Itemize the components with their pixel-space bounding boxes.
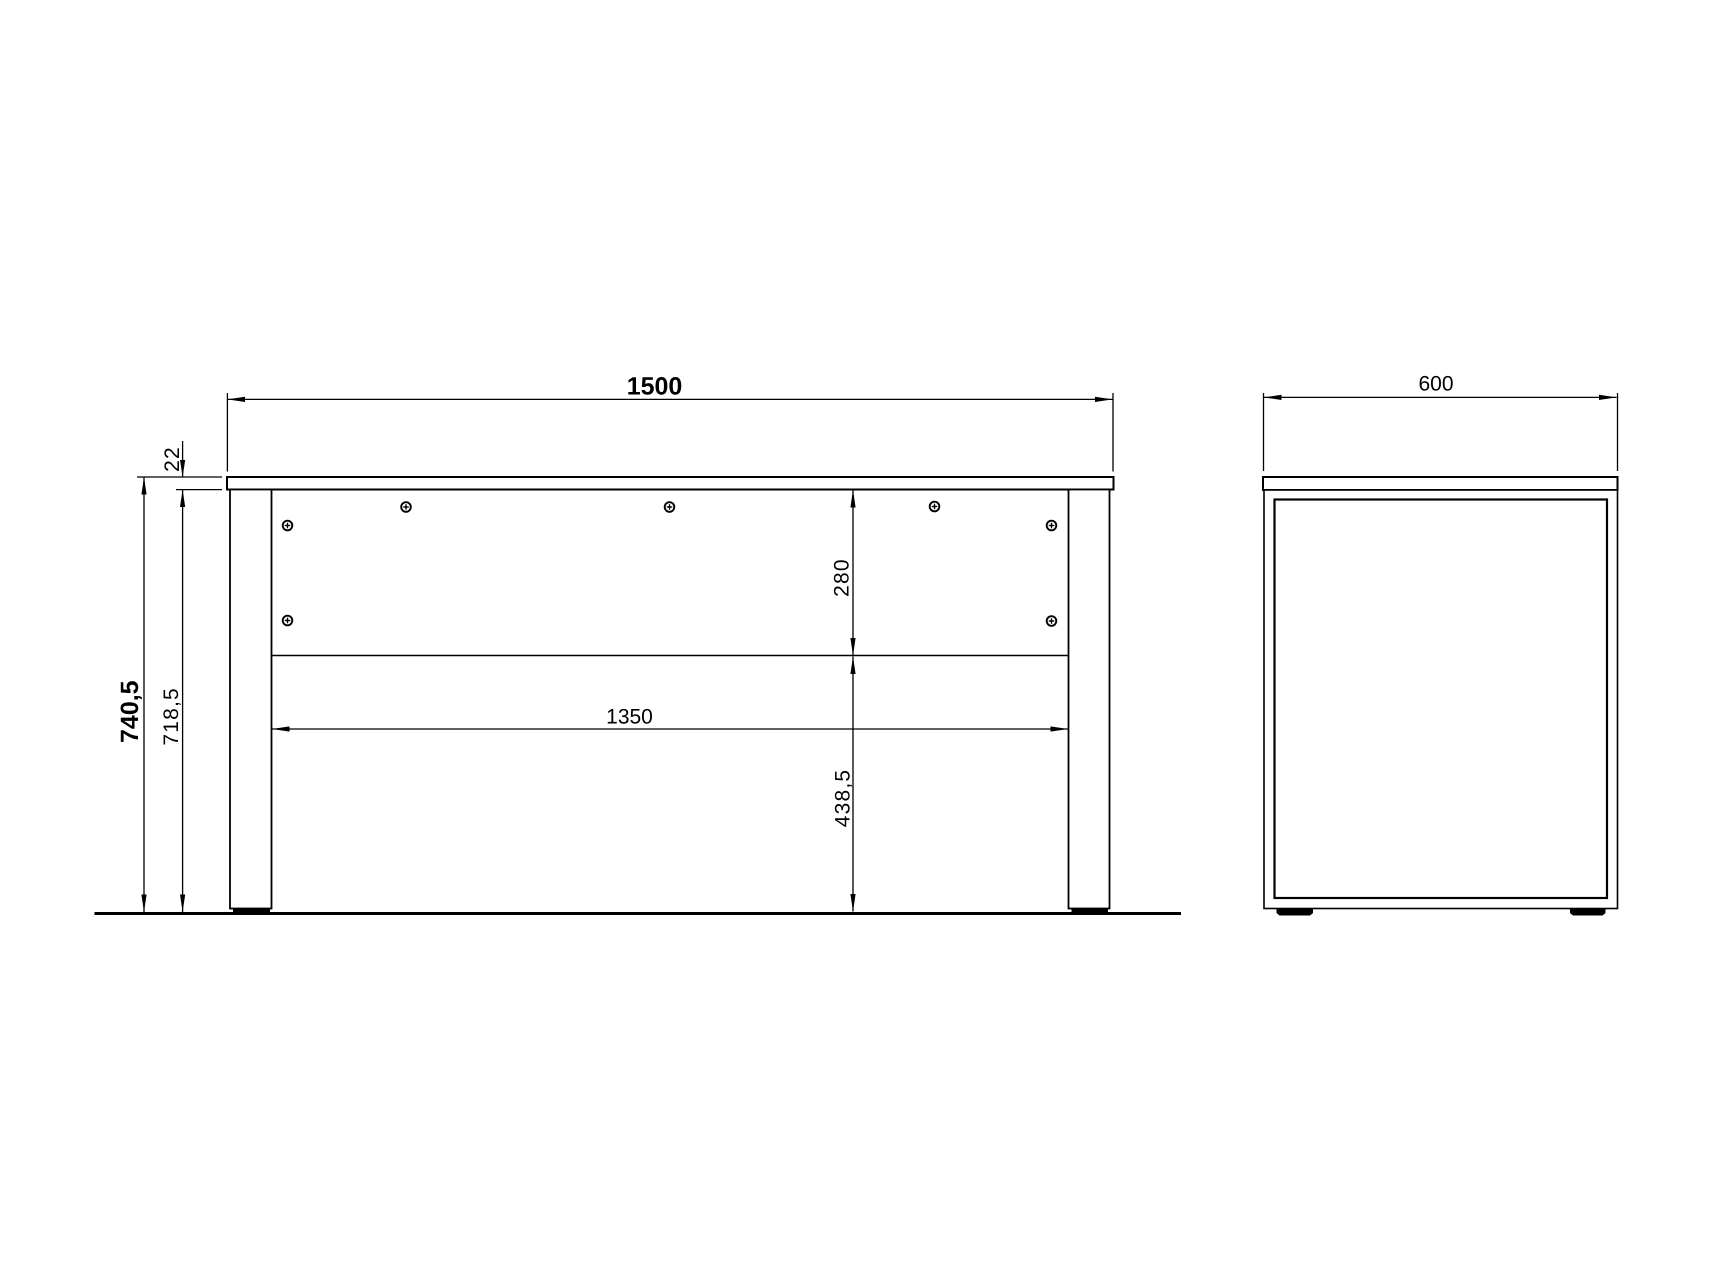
svg-text:22: 22	[161, 446, 184, 472]
svg-text:740,5: 740,5	[116, 680, 144, 743]
svg-text:1500: 1500	[627, 372, 683, 400]
svg-text:438,5: 438,5	[831, 769, 854, 828]
svg-text:280: 280	[830, 558, 853, 597]
svg-text:1350: 1350	[606, 706, 653, 729]
svg-text:600: 600	[1418, 373, 1453, 396]
svg-text:718,5: 718,5	[160, 687, 183, 746]
